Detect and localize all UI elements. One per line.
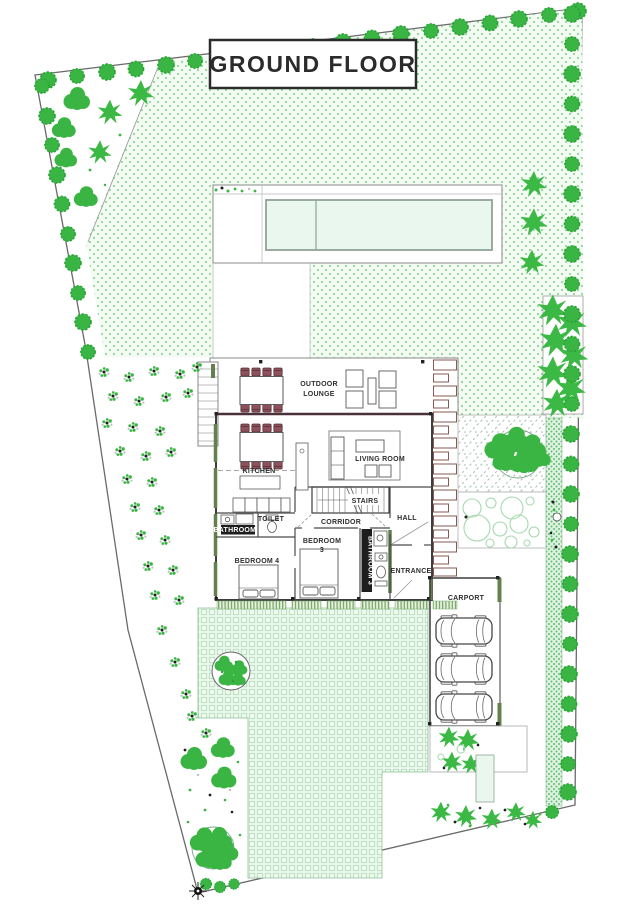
label-bedroom4: BEDROOM 4 [235, 558, 280, 565]
label-corridor: CORRIDOR [321, 519, 361, 526]
trellis-pergola [434, 360, 457, 576]
label-toilet: TOILET [258, 516, 285, 523]
car-3 [436, 691, 492, 723]
label-hall: HALL [397, 515, 417, 522]
hedge-strip [546, 418, 562, 806]
label-kitchen: KITCHEN [243, 468, 276, 475]
label-stairs: STAIRS [352, 498, 379, 505]
pool-area [213, 185, 502, 263]
label-outdoor-lounge-1: OUTDOOR [300, 381, 338, 388]
floor-plan-drawing: OUTDOOR LOUNGE KITCHEN LIVING ROOM STAIR… [0, 0, 640, 905]
floor-plan-page: OUTDOOR LOUNGE KITCHEN LIVING ROOM STAIR… [0, 0, 640, 905]
car-2 [436, 653, 492, 685]
label-bedroom3-2: 3 [320, 547, 324, 554]
label-bathroom3: BATHROOM 3 [367, 536, 374, 585]
car-1 [436, 615, 492, 647]
title-block: GROUND FLOOR [209, 40, 416, 88]
label-entrance: ENTRANCE [391, 568, 432, 575]
page-title: GROUND FLOOR [209, 51, 416, 77]
water-feature [476, 755, 494, 802]
label-bathroom4: BATHROOM 4 [213, 527, 262, 534]
planter-strips [217, 601, 457, 609]
lawn-tree [212, 652, 250, 690]
bedroom4-bed [239, 565, 278, 599]
bedroom3-bed [300, 549, 338, 598]
label-bedroom3-1: BEDROOM [303, 538, 341, 545]
swimming-pool [266, 200, 492, 250]
label-living-room: LIVING ROOM [355, 456, 405, 463]
label-carport: CARPORT [448, 595, 485, 602]
label-outdoor-lounge-2: LOUNGE [303, 391, 335, 398]
